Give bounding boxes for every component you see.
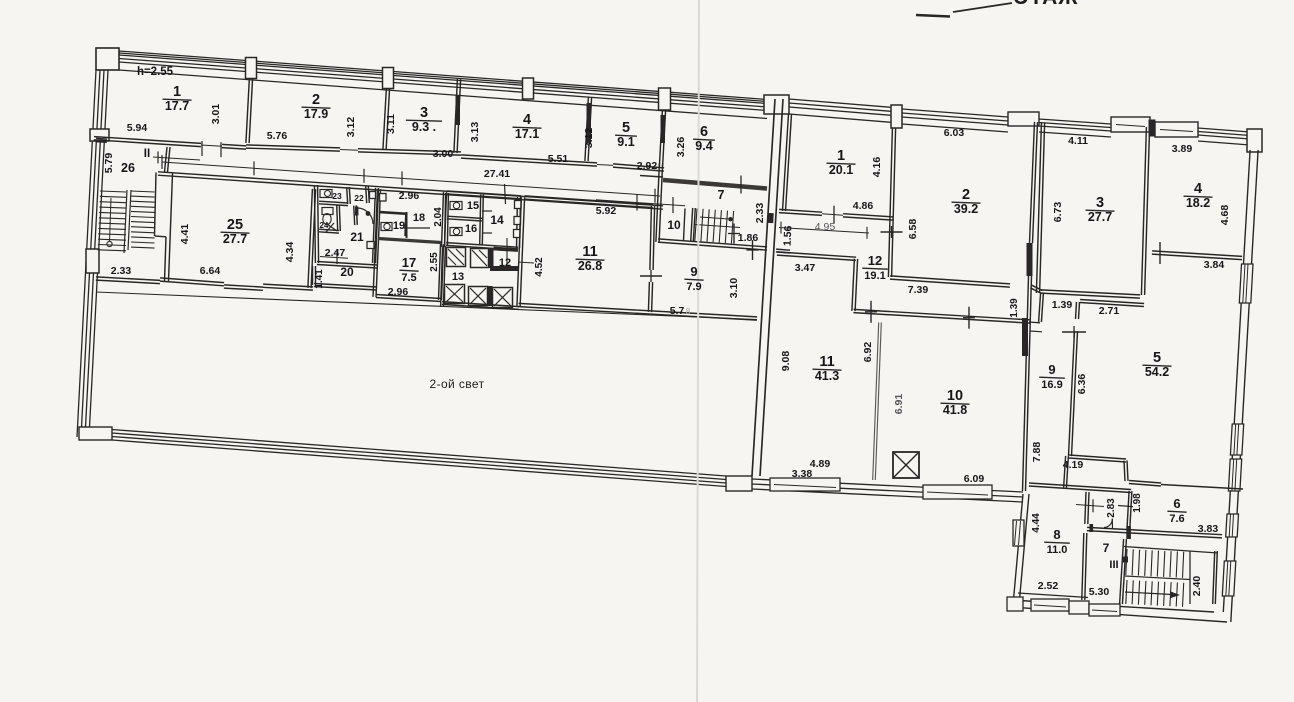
svg-text:3.83: 3.83	[1198, 523, 1219, 535]
svg-text:6.73: 6.73	[1052, 202, 1064, 223]
svg-text:2.04: 2.04	[433, 207, 444, 227]
svg-text:2.33: 2.33	[111, 265, 132, 277]
svg-text:6.64: 6.64	[200, 265, 221, 277]
svg-text:2.96: 2.96	[388, 286, 409, 298]
svg-text:3.01: 3.01	[210, 104, 222, 125]
svg-text:19.1: 19.1	[864, 270, 885, 282]
svg-text:3.47: 3.47	[795, 262, 816, 274]
svg-text:22: 22	[354, 193, 364, 203]
svg-text:4.95: 4.95	[815, 221, 836, 233]
svg-text:8: 8	[686, 307, 691, 316]
svg-text:4.19: 4.19	[1063, 459, 1084, 471]
svg-text:11: 11	[819, 354, 834, 370]
svg-text:2.40: 2.40	[1191, 576, 1203, 597]
svg-text:5.79: 5.79	[103, 153, 115, 174]
svg-text:1.56: 1.56	[781, 225, 794, 246]
svg-text:7: 7	[1103, 541, 1110, 555]
svg-text:3.84: 3.84	[1204, 259, 1225, 271]
svg-text:6.03: 6.03	[944, 127, 965, 139]
svg-text:16.9: 16.9	[1041, 379, 1062, 391]
svg-text:5.94: 5.94	[127, 122, 148, 134]
svg-text:3.11: 3.11	[385, 114, 397, 134]
svg-text:4.44: 4.44	[1031, 513, 1042, 533]
svg-text:5.92: 5.92	[596, 205, 617, 217]
svg-text:2.55: 2.55	[429, 252, 440, 272]
svg-text:10: 10	[947, 388, 963, 404]
svg-text:7.88: 7.88	[1031, 442, 1043, 463]
svg-text:2.96: 2.96	[399, 190, 420, 202]
svg-text:26.8: 26.8	[578, 259, 602, 273]
svg-text:17.7: 17.7	[165, 99, 189, 113]
svg-text:6.09: 6.09	[964, 473, 985, 485]
svg-text:9: 9	[690, 264, 697, 279]
svg-text:2.52: 2.52	[1038, 580, 1059, 592]
svg-text:12: 12	[868, 253, 882, 268]
svg-text:3: 3	[1096, 195, 1104, 211]
svg-text:7.6: 7.6	[1169, 513, 1184, 525]
svg-text:3.12: 3.12	[583, 128, 595, 149]
svg-text:18.2: 18.2	[1186, 196, 1210, 210]
svg-text:6: 6	[700, 124, 708, 140]
svg-text:4.89: 4.89	[810, 458, 831, 470]
svg-text:3: 3	[420, 105, 428, 121]
svg-text:1.39: 1.39	[1009, 298, 1020, 318]
svg-text:2.92: 2.92	[637, 160, 658, 172]
svg-text:39.2: 39.2	[954, 202, 978, 216]
svg-text:2.47: 2.47	[325, 247, 346, 259]
svg-text:5: 5	[1153, 350, 1161, 366]
svg-text:7.9: 7.9	[686, 281, 701, 293]
svg-text:13: 13	[452, 271, 464, 283]
svg-text:6.58: 6.58	[907, 219, 919, 240]
svg-text:9.3 .: 9.3 .	[412, 120, 436, 134]
svg-text:4: 4	[1194, 181, 1202, 197]
svg-text:3.26: 3.26	[675, 137, 687, 158]
svg-text:1.41: 1.41	[314, 269, 325, 289]
svg-text:17.1: 17.1	[515, 127, 539, 141]
svg-text:26: 26	[121, 161, 135, 175]
svg-text:7.5: 7.5	[401, 272, 416, 284]
svg-text:27.41: 27.41	[484, 168, 510, 180]
svg-text:7.39: 7.39	[908, 284, 929, 296]
svg-text:8: 8	[1053, 527, 1060, 542]
svg-text:4.41: 4.41	[179, 224, 191, 245]
svg-text:6.92: 6.92	[862, 342, 874, 363]
svg-text:4.68: 4.68	[1219, 205, 1231, 226]
svg-text:25: 25	[227, 217, 243, 233]
svg-text:17.9: 17.9	[304, 107, 328, 121]
svg-text:4.16: 4.16	[871, 157, 883, 178]
svg-text:19: 19	[393, 220, 405, 232]
svg-text:6.91: 6.91	[893, 394, 905, 415]
svg-text:III: III	[1109, 559, 1118, 571]
svg-text:1.98: 1.98	[1132, 493, 1143, 513]
svg-text:2.33: 2.33	[754, 203, 766, 224]
svg-text:ЭТАЖ: ЭТАЖ	[1014, 0, 1079, 9]
svg-text:17: 17	[402, 255, 416, 270]
svg-text:27.7: 27.7	[1088, 210, 1112, 224]
svg-text:21: 21	[350, 230, 364, 244]
svg-text:1: 1	[173, 84, 181, 100]
svg-text:3.89: 3.89	[1172, 143, 1193, 155]
svg-text:2.71: 2.71	[1099, 305, 1120, 317]
svg-text:15: 15	[467, 200, 479, 212]
svg-text:2-ой свет: 2-ой свет	[430, 377, 485, 391]
svg-text:5.76: 5.76	[267, 130, 288, 142]
svg-text:11.0: 11.0	[1047, 544, 1068, 556]
svg-text:h=2.55: h=2.55	[137, 66, 174, 78]
svg-text:3.13: 3.13	[469, 122, 481, 143]
svg-text:20.1: 20.1	[829, 163, 853, 177]
svg-text:4.52: 4.52	[534, 257, 545, 277]
svg-text:41.8: 41.8	[943, 403, 967, 417]
svg-text:20: 20	[340, 265, 354, 279]
svg-text:6: 6	[1173, 496, 1180, 511]
svg-text:16: 16	[465, 223, 477, 235]
svg-text:9: 9	[1048, 362, 1055, 377]
svg-text:18: 18	[413, 212, 425, 224]
svg-text:14: 14	[490, 213, 504, 227]
svg-text:3.38: 3.38	[792, 468, 813, 480]
svg-text:3.00: 3.00	[433, 148, 454, 160]
svg-text:41.3: 41.3	[815, 369, 839, 383]
svg-text:2.83: 2.83	[1106, 498, 1117, 518]
svg-text:4: 4	[523, 112, 531, 128]
svg-text:9.4: 9.4	[695, 139, 712, 153]
svg-text:5.51: 5.51	[548, 153, 569, 165]
svg-text:II: II	[144, 148, 150, 160]
svg-text:3.10: 3.10	[728, 278, 740, 299]
svg-text:2: 2	[312, 92, 320, 108]
svg-text:27.7: 27.7	[223, 232, 247, 246]
svg-text:7: 7	[718, 188, 725, 202]
svg-text:4.11: 4.11	[1068, 135, 1088, 147]
svg-text:12: 12	[499, 257, 511, 269]
svg-text:5.30: 5.30	[1089, 586, 1110, 598]
svg-text:23: 23	[332, 191, 342, 201]
svg-text:6.36: 6.36	[1076, 374, 1088, 395]
svg-text:1.39: 1.39	[1052, 299, 1073, 311]
svg-text:4.34: 4.34	[284, 242, 296, 263]
svg-text:1: 1	[837, 148, 845, 164]
svg-text:10: 10	[667, 218, 681, 232]
svg-text:2: 2	[962, 187, 970, 203]
svg-text:4.86: 4.86	[853, 200, 874, 212]
svg-text:9.08: 9.08	[780, 351, 792, 372]
svg-text:1.86: 1.86	[738, 232, 759, 244]
svg-text:54.2: 54.2	[1145, 365, 1169, 379]
svg-text:3.12: 3.12	[345, 117, 357, 138]
svg-text:5.7: 5.7	[670, 305, 685, 317]
svg-text:9.1: 9.1	[617, 135, 634, 149]
svg-text:5: 5	[622, 120, 630, 136]
svg-text:11: 11	[582, 244, 597, 260]
